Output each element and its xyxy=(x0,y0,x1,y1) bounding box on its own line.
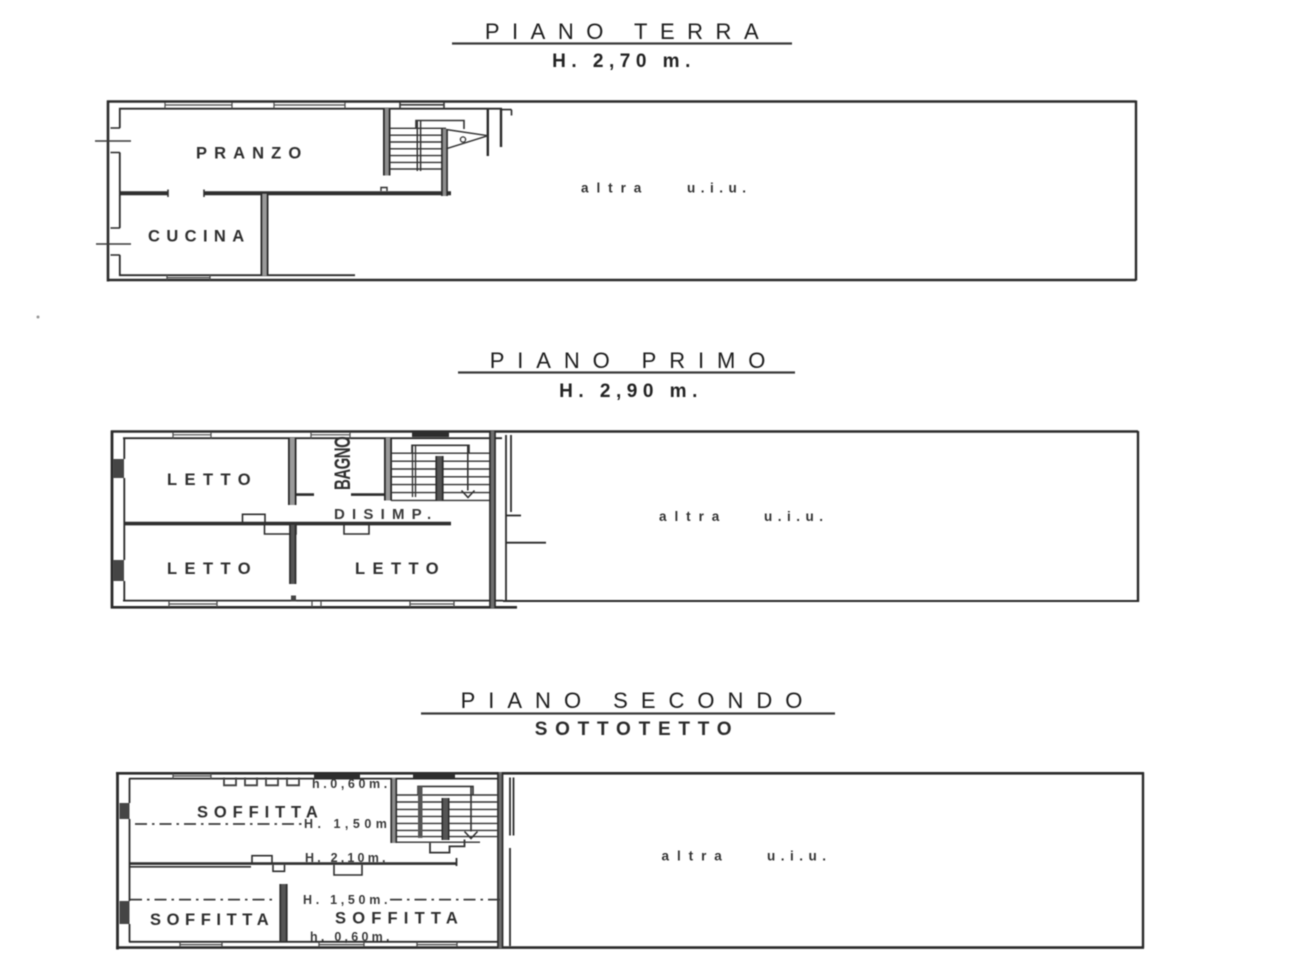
svg-text:altra: altra xyxy=(662,849,730,864)
svg-text:PIANO TERRA: PIANO TERRA xyxy=(485,19,771,44)
svg-text:SOFFITTA: SOFFITTA xyxy=(150,911,274,929)
svg-text:LETTO: LETTO xyxy=(355,560,446,578)
svg-text:SOTTOTETTO: SOTTOTETTO xyxy=(535,719,740,740)
svg-text:h.0,60m.: h.0,60m. xyxy=(312,777,391,791)
svg-text:u.i.u.: u.i.u. xyxy=(687,181,752,196)
svg-text:PIANO PRIMO: PIANO PRIMO xyxy=(490,348,779,373)
svg-text:LETTO: LETTO xyxy=(167,471,258,489)
svg-text:altra: altra xyxy=(659,509,727,524)
svg-text:u.i.u.: u.i.u. xyxy=(767,849,832,864)
svg-text:h. 0,60m.: h. 0,60m. xyxy=(310,930,393,944)
svg-text:PRANZO: PRANZO xyxy=(196,145,308,163)
svg-text:BAGNO: BAGNO xyxy=(331,436,356,490)
svg-text:u.i.u.: u.i.u. xyxy=(764,509,829,524)
svg-text:H. 2,70 m.: H. 2,70 m. xyxy=(552,51,696,72)
svg-text:H. 2,10m,: H. 2,10m, xyxy=(305,851,389,865)
svg-text:H. 2,90 m.: H. 2,90 m. xyxy=(559,381,703,402)
svg-text:LETTO: LETTO xyxy=(167,560,258,578)
svg-text:PIANO SECONDO: PIANO SECONDO xyxy=(461,688,816,713)
svg-text:H. 1,50m: H. 1,50m xyxy=(304,817,391,831)
svg-text:altra: altra xyxy=(581,181,649,196)
svg-text:SOFFITTA: SOFFITTA xyxy=(335,910,464,928)
svg-text:H. 1,50m.: H. 1,50m. xyxy=(303,893,391,907)
svg-text:CUCINA: CUCINA xyxy=(148,228,251,246)
svg-text:DISIMP.: DISIMP. xyxy=(334,506,438,523)
